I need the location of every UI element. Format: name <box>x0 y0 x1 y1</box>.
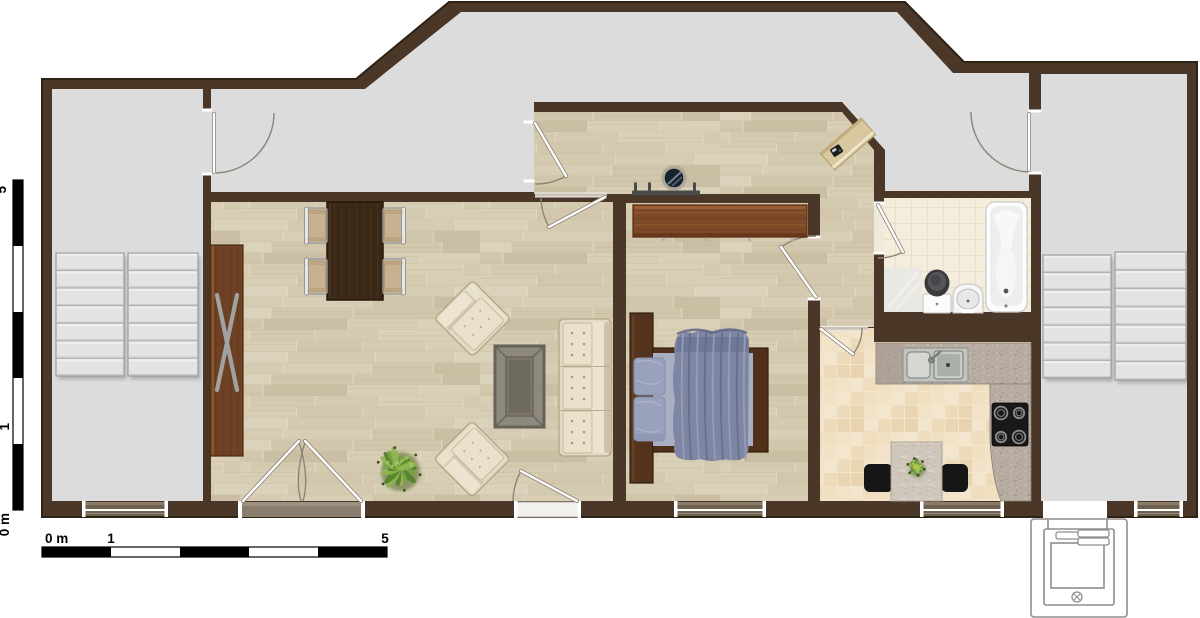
svg-text:1: 1 <box>0 423 12 431</box>
svg-text:0 m: 0 m <box>45 531 68 546</box>
svg-text:0 m: 0 m <box>0 513 12 536</box>
svg-text:5: 5 <box>0 186 9 194</box>
svg-text:5: 5 <box>381 531 389 546</box>
svg-text:1: 1 <box>107 531 115 546</box>
